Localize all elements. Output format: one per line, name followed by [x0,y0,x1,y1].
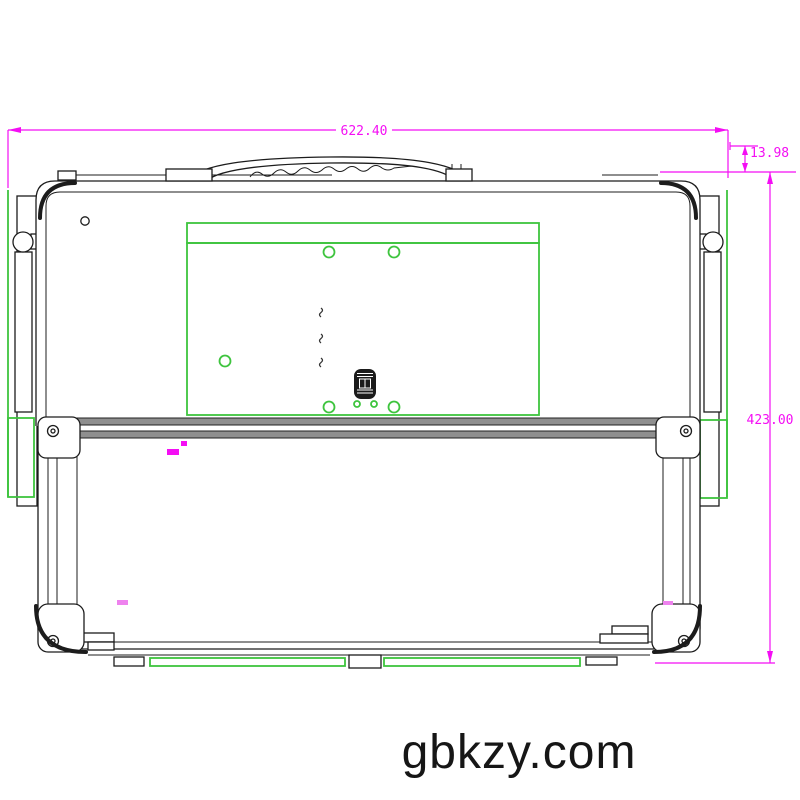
glide-strip [384,658,580,666]
screw [681,426,692,437]
carry-handle [186,157,471,181]
product-label [354,369,376,399]
foot [586,657,617,665]
watermark-text: gbkzy.com [402,726,637,779]
keyboard-tray [38,426,700,655]
glide-strip [150,658,345,666]
handle-mount-right [446,169,472,181]
overall-height-value: 423.00 [747,413,794,428]
overall-width-value: 622.40 [341,124,388,139]
bracket-bottom-right [652,604,700,652]
handle-mount-left [166,169,212,181]
foot [349,655,381,668]
left-ball-joint [13,232,33,252]
top-rail-block [58,171,76,180]
bottom-feet [114,655,617,668]
bracket-bottom-left [38,604,84,652]
right-hinge-assembly [697,190,727,506]
bracket-top-left [38,417,80,458]
foot [114,657,144,666]
screw [48,426,59,437]
technical-drawing: 622.40 13.98 423.00 gbkzy.com [0,0,800,800]
bracket-top-right [656,417,700,458]
handle-offset-value: 13.98 [750,146,789,161]
left-hinge-assembly [8,190,40,506]
drawing-canvas: 622.40 13.98 423.00 gbkzy.com [0,0,800,800]
right-ball-joint [703,232,723,252]
